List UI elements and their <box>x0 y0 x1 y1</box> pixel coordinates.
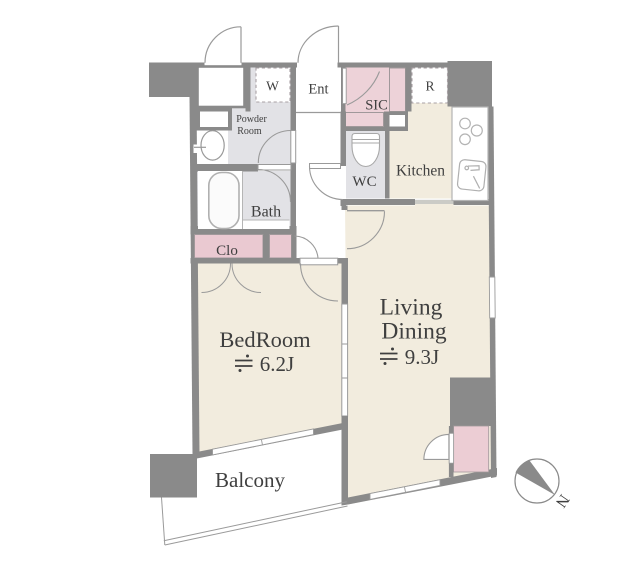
svg-text:9.3J: 9.3J <box>405 345 439 369</box>
svg-text:R: R <box>425 79 434 94</box>
svg-text:Kitchen: Kitchen <box>396 163 445 180</box>
svg-text:WC: WC <box>352 174 376 190</box>
svg-text:Dining: Dining <box>381 319 447 345</box>
svg-text:Clo: Clo <box>216 243 238 259</box>
svg-text:Powder: Powder <box>236 114 267 125</box>
svg-text:6.2J: 6.2J <box>260 352 294 376</box>
svg-text:W: W <box>266 79 279 94</box>
svg-text:Living: Living <box>380 295 443 321</box>
svg-text:Room: Room <box>237 126 262 137</box>
svg-text:BedRoom: BedRoom <box>219 327 311 352</box>
svg-text:Balcony: Balcony <box>215 468 285 492</box>
svg-text:Ent: Ent <box>308 82 328 98</box>
svg-text:Bath: Bath <box>251 204 281 221</box>
svg-text:SIC: SIC <box>365 98 388 114</box>
